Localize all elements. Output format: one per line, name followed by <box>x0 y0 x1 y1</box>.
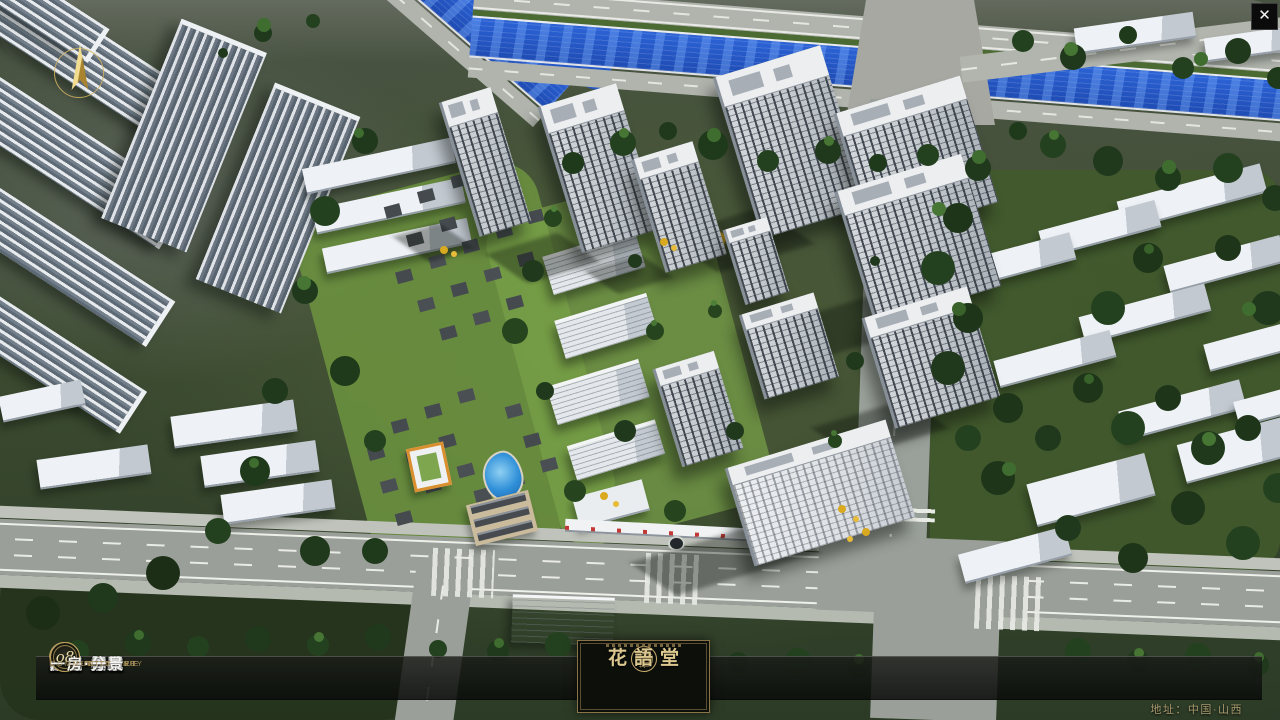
masterplan-3d-view[interactable] <box>0 0 1280 720</box>
nav-label-en: COMMUNITY <box>50 661 113 668</box>
project-logo-panel[interactable]: 花語堂 <box>577 640 710 713</box>
nav-group-right: o5 园林·景观 GARDEN STREET o6 精装·体验 EXPERIEN… <box>36 657 588 699</box>
crosswalk <box>431 548 495 599</box>
flower-bed <box>0 0 8 8</box>
logo-divider <box>606 644 682 647</box>
compass-north-indicator[interactable] <box>52 42 108 106</box>
project-name: 花語堂 <box>601 643 686 670</box>
crosswalk <box>974 575 1046 632</box>
sales-presentation-window: ✕ o1 品牌·介绍 BRAND SUPPORT o2 区位·价值 LOCATI… <box>0 0 1280 720</box>
kindergarten-courtyard <box>417 452 442 482</box>
project-address: 地址：中国·山西 <box>1150 701 1243 717</box>
south-retail-building <box>511 594 615 646</box>
close-button[interactable]: ✕ <box>1251 3 1278 30</box>
